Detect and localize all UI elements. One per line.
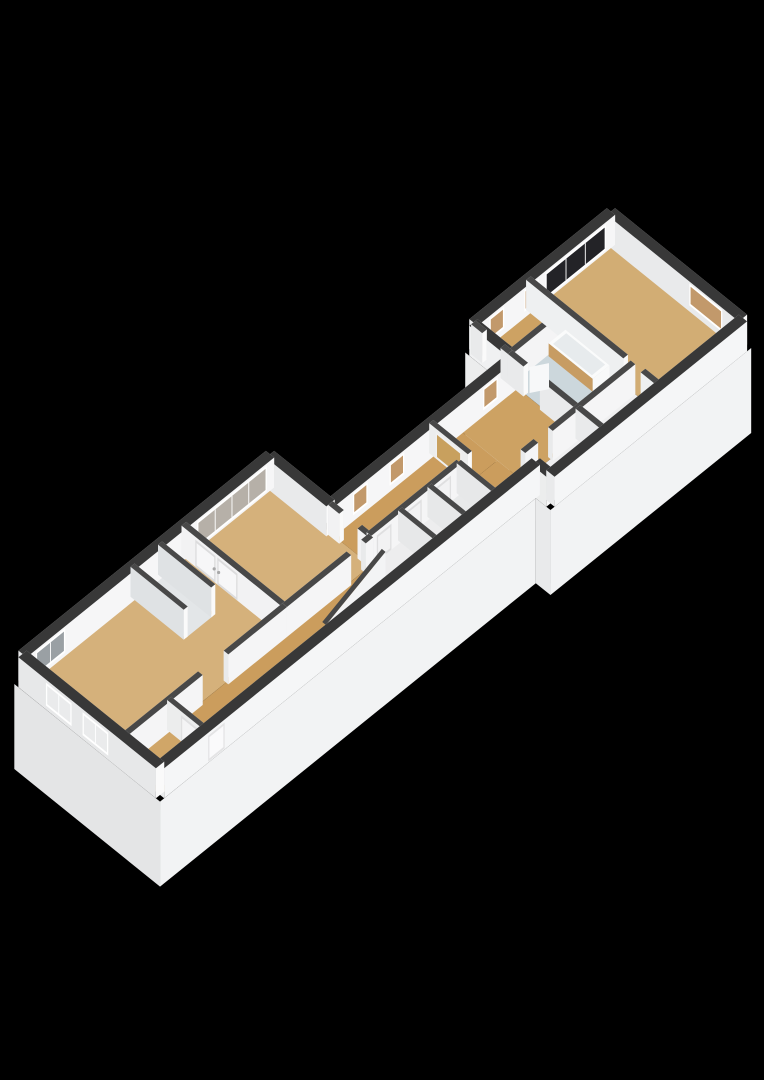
window-sw-2-mullion-1: [58, 695, 59, 714]
wall-living-corridor-b-cap-sw: [224, 651, 229, 685]
window-dining-band-mullion-2: [232, 496, 233, 518]
window-dining-band-mullion-3: [248, 482, 249, 504]
slab-skirt-step: [536, 498, 551, 595]
floorplan-stage: [0, 0, 764, 1080]
wall-hall-west-b-cap-se: [482, 329, 487, 363]
window-bedroom-band-mullion-1: [566, 258, 567, 280]
wall-dining-se-b-cap-sw: [361, 540, 366, 574]
door-bathroom-leaf: [530, 363, 549, 393]
door-handle-2: [213, 567, 216, 570]
wall-nook-sw-cap-se: [184, 606, 188, 639]
window-living-west-mullion-1: [50, 642, 51, 662]
wall-se-strip-b-cap-sw: [548, 427, 553, 461]
door-handle-1: [217, 571, 220, 574]
wall-bathroom-sw-b-cap-se: [523, 363, 528, 397]
wall-hall-west-a-face-sw: [501, 348, 508, 384]
floorplan-3d-render: [0, 0, 764, 1080]
wall-dining-connector-b-cap-se: [339, 510, 344, 544]
window-sw-1-mullion-1: [95, 724, 96, 743]
wall-nook-ne-cap-se: [211, 584, 215, 617]
window-dining-band-mullion-1: [215, 509, 216, 531]
window-bedroom-band-mullion-2: [585, 243, 586, 265]
